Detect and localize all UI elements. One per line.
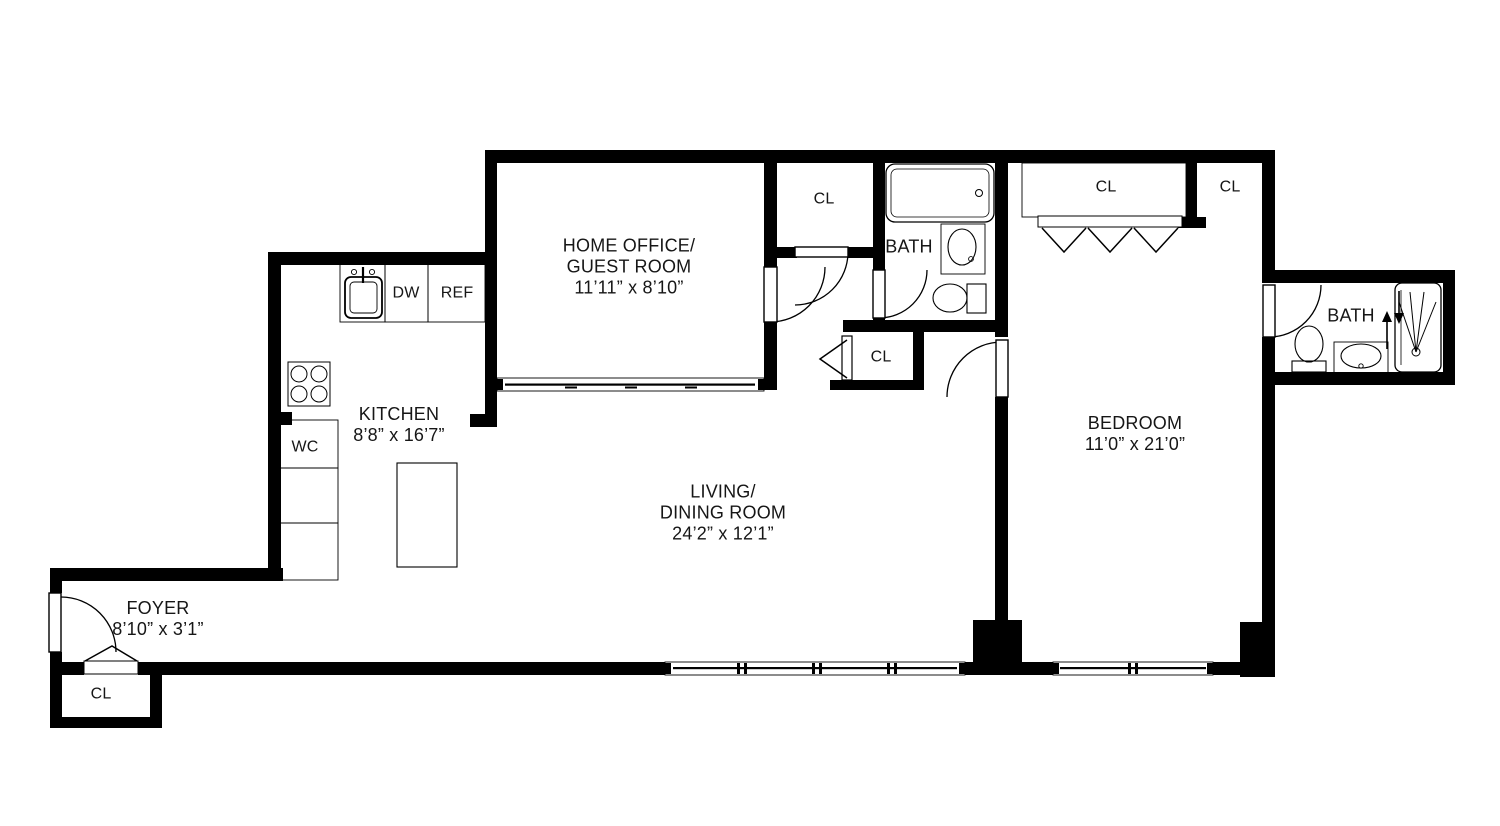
room-name: KITCHEN (353, 404, 444, 425)
closet-door-swing (795, 247, 848, 305)
window (665, 662, 965, 675)
floor-plan-drawing (0, 0, 1500, 826)
room-label-bedroom: BEDROOM 11’0” x 21’0” (1085, 413, 1185, 455)
bifold-door (820, 336, 852, 380)
room-name: HOME OFFICE/ (563, 236, 695, 257)
room-name: FOYER (112, 598, 203, 619)
arrow-up-icon (1382, 311, 1392, 349)
room-dimensions: 8’8” x 16’7” (353, 425, 444, 446)
floor-plan: HOME OFFICE/ GUEST ROOM 11’11” x 8’10” L… (0, 0, 1500, 826)
stove-icon (288, 362, 330, 406)
room-dimensions: 8’10” x 3’1” (112, 619, 203, 640)
appliance-label: REF (441, 283, 474, 304)
toilet-icon (1292, 326, 1326, 372)
room-name: WC (291, 437, 318, 458)
closet-label-bedroom-wide: CL (1096, 177, 1117, 198)
kitchen-sink-icon (345, 267, 382, 318)
ensuite-bath-fixtures (1292, 283, 1441, 373)
room-name: BATH (885, 237, 932, 258)
room-label-hall-bath: BATH (885, 237, 932, 258)
kitchen-island (397, 463, 457, 567)
room-label-home-office: HOME OFFICE/ GUEST ROOM 11’11” x 8’10” (563, 236, 695, 299)
closet-label: CL (1220, 177, 1241, 198)
appliance-label: DW (392, 283, 419, 304)
room-name: BEDROOM (1085, 413, 1185, 434)
room-dimensions: 11’0” x 21’0” (1085, 434, 1185, 455)
bedroom-door-swing (947, 340, 1008, 397)
appliance-label-dishwasher: DW (392, 283, 419, 304)
window (1053, 662, 1213, 675)
room-dimensions: 11’11” x 8’10” (563, 278, 695, 299)
closet-label-hall-lower: CL (871, 347, 892, 368)
bath-door-swing (1263, 285, 1321, 337)
room-label-living-dining: LIVING/ DINING ROOM 24’2” x 12’1” (660, 482, 786, 545)
closet-label: CL (91, 684, 112, 705)
bath-door-swing (873, 270, 927, 318)
toilet-icon (933, 284, 986, 313)
room-label-ensuite-bath: BATH (1327, 306, 1374, 327)
room-name: DINING ROOM (660, 503, 786, 524)
room-dimensions: 24’2” x 12’1” (660, 524, 786, 545)
window (497, 378, 764, 391)
shower-icon (1395, 283, 1441, 372)
closet-label-foyer: CL (91, 684, 112, 705)
room-label-foyer: FOYER 8’10” x 3’1” (112, 598, 203, 640)
walls (50, 150, 1455, 728)
home-office-door-swing (764, 267, 825, 322)
room-name: BATH (1327, 306, 1374, 327)
closet-label: CL (871, 347, 892, 368)
room-label-kitchen: KITCHEN 8’8” x 16’7” (353, 404, 444, 446)
room-name: LIVING/ (660, 482, 786, 503)
room-label-wc: WC (291, 437, 318, 458)
closet-label-bedroom-corner: CL (1220, 177, 1241, 198)
closet-label: CL (1096, 177, 1117, 198)
appliance-label-refrigerator: REF (441, 283, 474, 304)
room-name: GUEST ROOM (563, 257, 695, 278)
bifold-door (84, 646, 138, 674)
closet-label: CL (814, 189, 835, 210)
sink-icon (1334, 342, 1388, 373)
bathtub-icon (886, 164, 994, 222)
sink-icon (941, 224, 985, 274)
entry-door-swing (49, 593, 116, 652)
closet-label-hall-upper: CL (814, 189, 835, 210)
